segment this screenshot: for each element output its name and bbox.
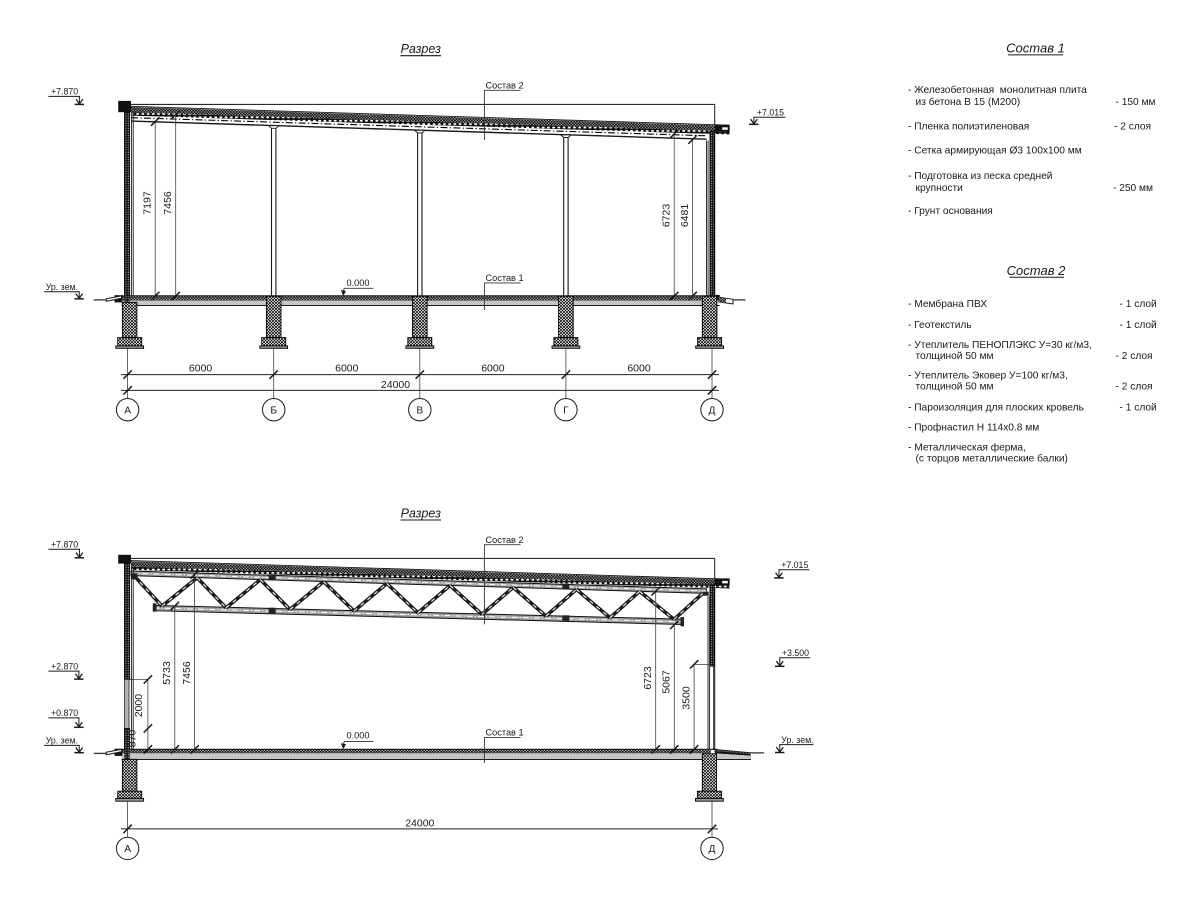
svg-text:+7.015: +7.015	[757, 108, 784, 118]
svg-text:7197: 7197	[141, 191, 153, 215]
svg-text:- 1 слой: - 1 слой	[1120, 402, 1157, 413]
svg-text:Состав 1: Состав 1	[486, 273, 524, 283]
svg-text:+3.500: +3.500	[782, 648, 809, 658]
svg-text:6000: 6000	[189, 362, 213, 374]
svg-text:- 150 мм: - 150 мм	[1116, 97, 1156, 108]
svg-text:- Железобетонная монолитная п: - Железобетонная монолитная плита	[908, 84, 1087, 96]
svg-text:- Профнастил Н 114х0.8 мм: - Профнастил Н 114х0.8 мм	[908, 421, 1039, 433]
svg-text:5733: 5733	[161, 661, 173, 685]
svg-text:- Пленка полиэтиленовая: - Пленка полиэтиленовая	[908, 121, 1029, 132]
svg-text:Состав 2: Состав 2	[486, 535, 524, 545]
svg-text:А: А	[124, 405, 131, 416]
svg-text:+0.870: +0.870	[51, 708, 78, 718]
svg-text:толщиной 50 мм: толщиной 50 мм	[916, 351, 994, 362]
svg-text:24000: 24000	[381, 379, 410, 391]
svg-text:0.000: 0.000	[347, 731, 370, 741]
svg-text:В: В	[416, 405, 423, 416]
svg-text:- Пароизоляция для плоских кро: - Пароизоляция для плоских кровель	[908, 402, 1084, 413]
svg-text:5067: 5067	[661, 670, 673, 694]
svg-text:- Мембрана ПВХ: - Мембрана ПВХ	[908, 298, 987, 310]
svg-text:+7.870: +7.870	[51, 540, 78, 550]
svg-text:6000: 6000	[627, 362, 651, 374]
svg-text:24000: 24000	[405, 817, 434, 829]
svg-text:Разрез: Разрез	[401, 42, 442, 56]
svg-text:+7.015: +7.015	[781, 560, 808, 570]
svg-text:- 250 мм: - 250 мм	[1113, 183, 1153, 194]
svg-text:Состав 2: Состав 2	[486, 81, 524, 91]
svg-text:- 2 слоя: - 2 слоя	[1114, 121, 1151, 132]
svg-text:крупности: крупности	[916, 183, 963, 194]
svg-text:Д: Д	[709, 405, 716, 416]
svg-text:- 2 слоя: - 2 слоя	[1116, 382, 1153, 393]
svg-text:+7.870: +7.870	[51, 87, 78, 97]
svg-text:- Грунт основания: - Грунт основания	[908, 206, 993, 217]
svg-text:2000: 2000	[133, 694, 145, 718]
svg-text:толщиной 50 мм: толщиной 50 мм	[916, 382, 994, 393]
svg-text:Ур. зем.: Ур. зем.	[46, 282, 78, 292]
svg-text:7456: 7456	[181, 661, 193, 685]
svg-text:- 1 слой: - 1 слой	[1120, 320, 1157, 331]
svg-text:Ур. зем.: Ур. зем.	[46, 736, 78, 746]
svg-text:Г: Г	[563, 405, 569, 416]
svg-text:Состав 2: Состав 2	[1007, 263, 1066, 278]
svg-text:Разрез: Разрез	[401, 506, 442, 520]
svg-text:6723: 6723	[642, 666, 654, 690]
svg-text:А: А	[124, 844, 131, 855]
svg-text:+2.870: +2.870	[51, 661, 78, 671]
svg-text:из бетона В 15 (М200): из бетона В 15 (М200)	[916, 96, 1021, 108]
svg-text:- Сетка армирующая Ø3 100х100: - Сетка армирующая Ø3 100х100 мм	[908, 146, 1082, 157]
svg-text:- Утеплитель Эковер У=100 кг/м: - Утеплитель Эковер У=100 кг/м3,	[908, 371, 1068, 382]
svg-text:- Утеплитель ПЕНОПЛЭКС У=30 кг: - Утеплитель ПЕНОПЛЭКС У=30 кг/м3,	[908, 340, 1092, 351]
svg-text:- Металлическая ферма,: - Металлическая ферма,	[908, 441, 1026, 453]
svg-text:Б: Б	[270, 405, 277, 416]
svg-text:Состав 1: Состав 1	[486, 728, 524, 738]
svg-text:Ур. зем.: Ур. зем.	[781, 735, 813, 745]
svg-text:6000: 6000	[481, 362, 505, 374]
svg-text:- 1 слой: - 1 слой	[1120, 299, 1157, 310]
svg-text:6723: 6723	[660, 204, 672, 228]
svg-text:- Геотекстиль: - Геотекстиль	[908, 320, 972, 331]
svg-text:3500: 3500	[680, 686, 692, 710]
svg-text:Состав 1: Состав 1	[1006, 41, 1065, 56]
svg-text:6000: 6000	[335, 362, 359, 374]
svg-text:Д: Д	[709, 844, 716, 855]
svg-text:- Подготовка из песка средней: - Подготовка из песка средней	[908, 171, 1052, 182]
svg-text:870: 870	[126, 730, 138, 748]
svg-text:- 2 слоя: - 2 слоя	[1116, 351, 1153, 362]
svg-text:6481: 6481	[679, 204, 691, 228]
svg-text:(с торцов металлические балки): (с торцов металлические балки)	[916, 453, 1068, 465]
svg-text:0.000: 0.000	[347, 278, 370, 288]
svg-text:7456: 7456	[162, 191, 174, 215]
